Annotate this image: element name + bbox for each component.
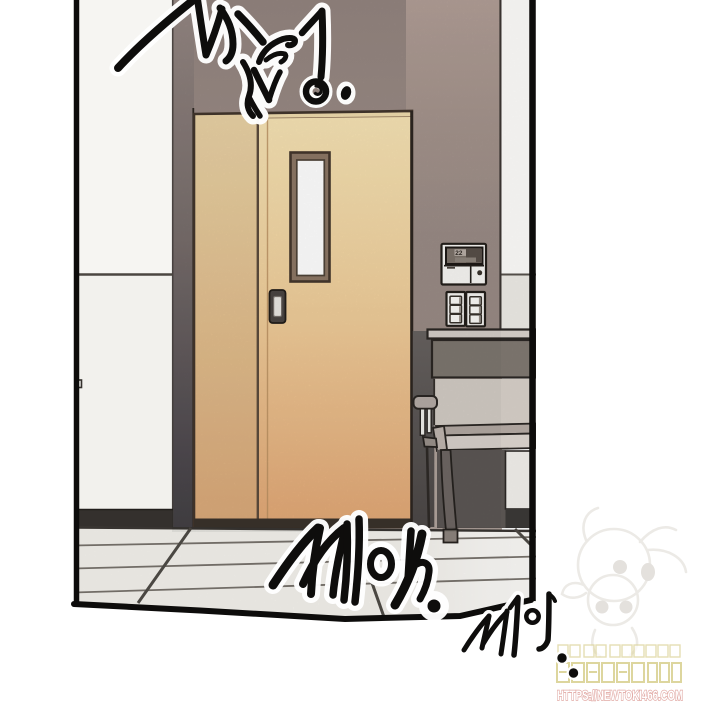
svg-text:HTTPS://NEWTOKI466.COM: HTTPS://NEWTOKI466.COM <box>557 688 683 703</box>
